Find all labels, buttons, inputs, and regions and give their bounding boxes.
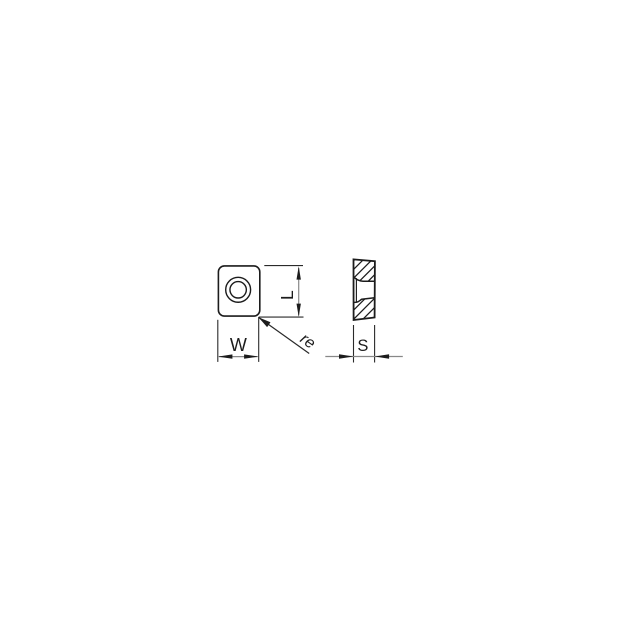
svg-text:S: S bbox=[357, 337, 368, 355]
svg-text:L: L bbox=[277, 290, 297, 300]
svg-text:W: W bbox=[230, 335, 247, 355]
svg-text:re: re bbox=[297, 330, 319, 352]
